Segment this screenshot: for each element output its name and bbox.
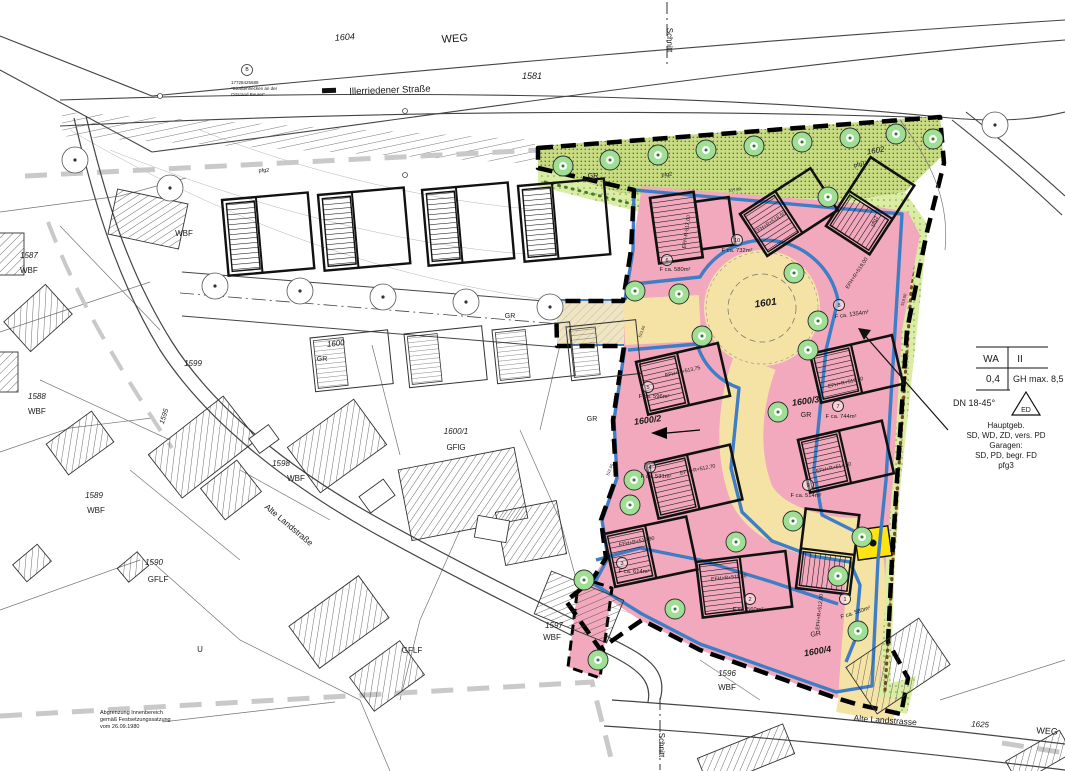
map-label: 1589 xyxy=(85,491,103,500)
parcel-number: 5 xyxy=(646,385,649,391)
map-label: pfg2 xyxy=(258,168,269,175)
map-label: vom 26.09.1980 xyxy=(100,724,139,730)
map-label: 17728425688 xyxy=(231,80,259,85)
parcel-area-label: F ca. 560m² xyxy=(733,607,764,613)
planned-tree-icon xyxy=(768,402,788,422)
site-plan: Bebauungsplan Lageplan – Illerriedener S… xyxy=(0,0,1065,771)
site-plan-svg: Bebauungsplan Lageplan – Illerriedener S… xyxy=(0,0,1065,771)
map-label: DN 18-45° xyxy=(953,398,996,408)
map-label: 1596 xyxy=(718,669,736,678)
map-label: WBF xyxy=(287,474,305,483)
map-label: 1598 xyxy=(272,459,290,468)
map-label: 1600 xyxy=(326,338,345,349)
map-label: WBF xyxy=(718,683,736,692)
planned-tree-icon xyxy=(726,532,746,552)
parcel-number: 1 xyxy=(843,597,846,603)
parcel-area-label: F ca. 596m² xyxy=(639,394,670,400)
planned-tree-icon xyxy=(624,470,644,490)
planned-tree-icon xyxy=(553,156,573,176)
planned-tree-icon xyxy=(648,145,668,165)
existing-tree-icon xyxy=(982,112,1008,138)
map-label: gemäß Festsetzungssatzung xyxy=(100,717,171,723)
map-label: Garagen: xyxy=(989,441,1022,450)
map-label: 1597 xyxy=(545,621,563,630)
planned-tree-icon xyxy=(625,281,645,301)
map-label: U xyxy=(197,645,203,654)
map-label: WA xyxy=(983,354,999,365)
existing-tree-icon xyxy=(287,278,313,304)
planned-tree-icon xyxy=(620,495,640,515)
map-label: GFLF xyxy=(148,575,169,584)
map-label: Schnitt xyxy=(665,28,674,53)
map-label: 1587 xyxy=(20,251,38,260)
map-label: GR xyxy=(587,416,598,423)
planned-tree-icon xyxy=(669,284,689,304)
map-label: GFLF xyxy=(402,646,423,655)
planned-tree-icon xyxy=(886,124,906,144)
planned-tree-icon xyxy=(692,326,712,346)
existing-tree-icon xyxy=(157,175,183,201)
planned-tree-icon xyxy=(792,132,812,152)
parcel-number: 3 xyxy=(620,561,623,567)
parcel-area-label: F ca. 744m² xyxy=(826,414,857,420)
planned-tree-icon xyxy=(784,263,804,283)
map-label: WBF xyxy=(20,266,38,275)
map-label: pfg3 xyxy=(998,461,1014,470)
planned-tree-icon xyxy=(744,136,764,156)
planned-tree-icon xyxy=(818,187,838,207)
map-label: WBF xyxy=(28,407,46,416)
map-label: GH max. 8,5 xyxy=(1013,374,1064,384)
planned-tree-icon xyxy=(840,128,860,148)
parcel-area-label: F ca. 531m² xyxy=(641,474,672,480)
planned-tree-icon xyxy=(798,340,818,360)
parcel-number: 8 xyxy=(837,303,840,309)
map-label: "Straßenhecken an der xyxy=(231,86,278,91)
parcel-number: 4 xyxy=(648,465,651,471)
existing-tree-icon xyxy=(202,273,228,299)
map-label: WBF xyxy=(87,506,105,515)
parcel-number: 7 xyxy=(836,404,839,410)
parcel-number: 2 xyxy=(748,597,751,603)
parcel-number: 9 xyxy=(806,483,809,489)
map-label: GR xyxy=(801,412,812,419)
existing-tree-icon xyxy=(62,147,88,173)
map-label: ED xyxy=(1021,407,1031,414)
planned-tree-icon xyxy=(848,621,868,641)
map-label: WEG xyxy=(1036,725,1058,736)
planned-tree-icon xyxy=(696,140,716,160)
map-label: WEG xyxy=(441,32,468,46)
map-label: WBF xyxy=(543,633,561,642)
map-label: pfg2 xyxy=(661,172,672,179)
map-label: WBF xyxy=(175,229,193,238)
map-label: SD, PD, begr. FD xyxy=(975,451,1037,460)
existing-tree-icon xyxy=(537,294,563,320)
planned-tree-icon xyxy=(923,129,943,149)
map-label: Abgrenzung Innenbereich xyxy=(100,710,163,716)
parcel-area-label: F ca. 514m² xyxy=(791,493,822,499)
map-label: Ortsrand Beurer" xyxy=(231,92,265,97)
map-label: GR xyxy=(588,173,599,180)
map-label: 1581 xyxy=(522,71,542,81)
map-label: 1600/1 xyxy=(444,427,468,436)
map-label: Schnitt xyxy=(657,733,666,758)
map-label: 0,4 xyxy=(986,374,1000,385)
map-label: Hauptgeb. xyxy=(988,421,1025,430)
map-label: II xyxy=(1017,354,1023,365)
planned-tree-icon xyxy=(588,650,608,670)
map-label: 1588 xyxy=(28,392,46,401)
map-label: GR xyxy=(317,356,328,363)
planned-tree-icon xyxy=(574,570,594,590)
map-label: 1625 xyxy=(971,720,990,730)
parcel-area-label: F ca. 614m² xyxy=(619,569,650,575)
map-label: 1599 xyxy=(184,359,202,368)
map-label: SD, WD, ZD, vers. PD xyxy=(966,431,1045,440)
parcel-number: 10 xyxy=(734,238,740,244)
planned-tree-icon xyxy=(783,511,803,531)
planned-tree-icon xyxy=(828,566,848,586)
parcel-number: 6 xyxy=(665,258,668,264)
existing-tree-icon xyxy=(370,284,396,310)
planned-tree-icon xyxy=(600,150,620,170)
parcel-area-label: F ca. 580m² xyxy=(660,267,691,273)
map-label: GR xyxy=(505,313,516,320)
planned-tree-icon xyxy=(665,599,685,619)
parcel-area-label: F ca. 732m² xyxy=(722,248,753,254)
map-label: GFlG xyxy=(446,443,465,452)
map-label: 1590 xyxy=(145,558,163,567)
existing-tree-icon xyxy=(453,289,479,315)
planned-tree-icon xyxy=(808,311,828,331)
planned-tree-icon xyxy=(852,527,872,547)
map-label: 1604 xyxy=(334,31,355,42)
